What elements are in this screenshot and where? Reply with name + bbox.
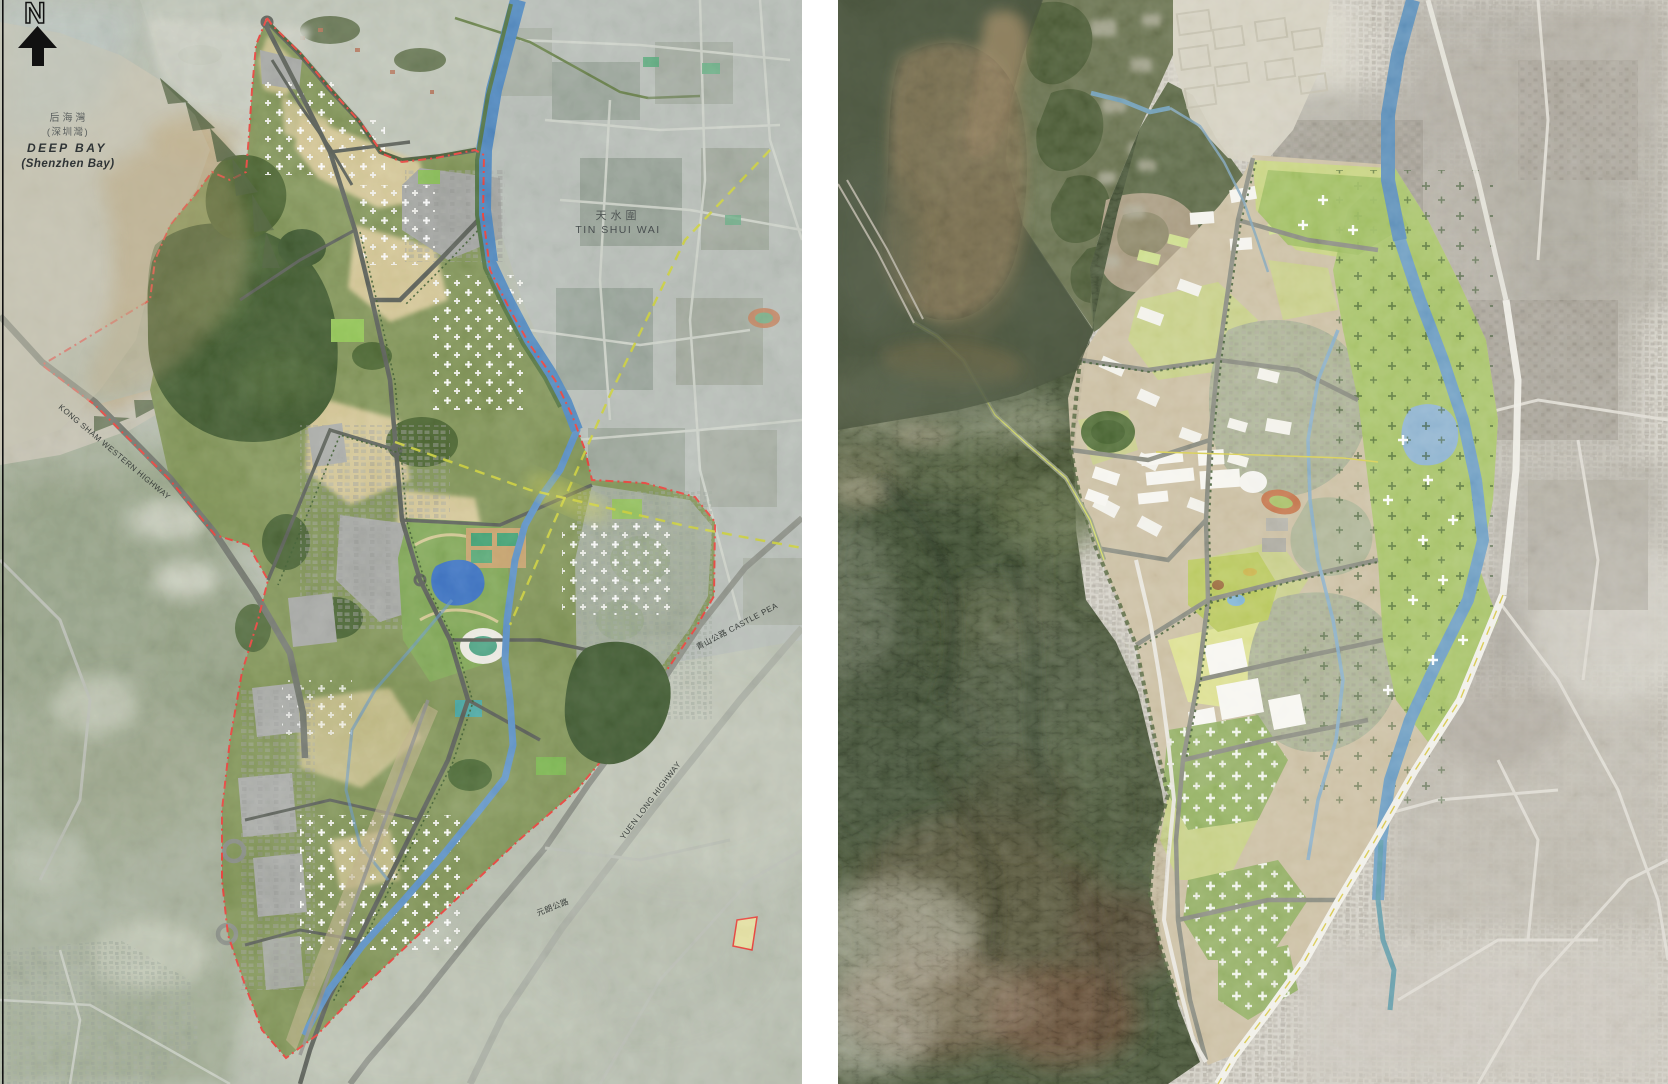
svg-text:天水圍: 天水圍: [596, 209, 641, 222]
svg-text:N: N: [24, 0, 46, 30]
svg-text:后海灣: 后海灣: [50, 111, 89, 124]
svg-text:(Shenzhen Bay): (Shenzhen Bay): [21, 158, 114, 170]
svg-text:TIN SHUI WAI: TIN SHUI WAI: [575, 224, 660, 236]
svg-text:DEEP BAY: DEEP BAY: [27, 141, 107, 155]
svg-text:(深圳灣): (深圳灣): [47, 126, 89, 138]
